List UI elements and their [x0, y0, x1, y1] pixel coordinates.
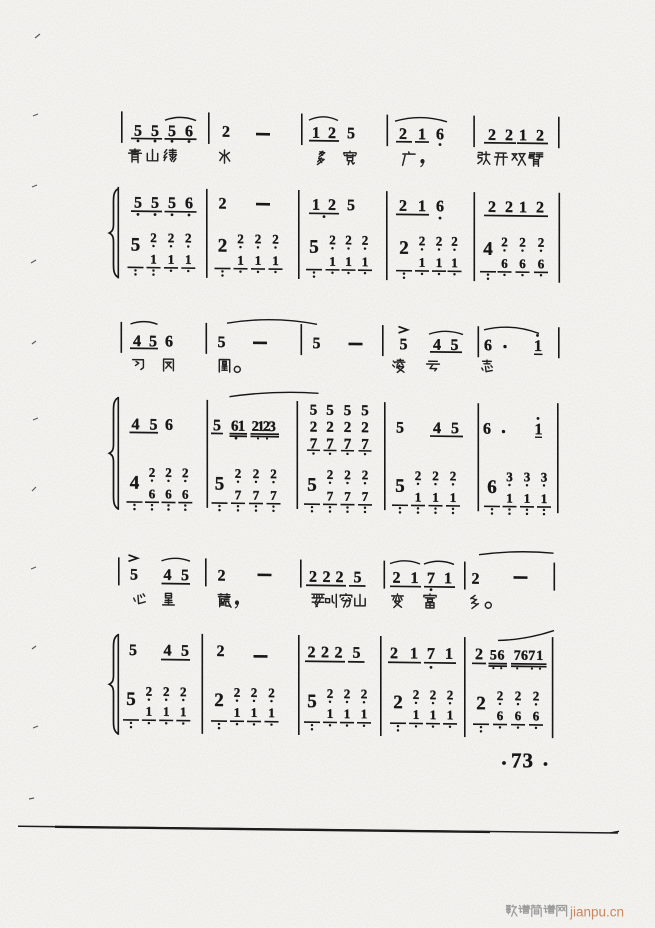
svg-text:2: 2 [415, 468, 421, 483]
svg-text:1: 1 [168, 252, 174, 267]
svg-text:1: 1 [506, 491, 512, 506]
svg-text:6: 6 [182, 487, 189, 502]
svg-text:2: 2 [419, 233, 425, 248]
svg-text:1: 1 [237, 253, 243, 268]
svg-text:2: 2 [270, 466, 276, 481]
svg-text:2: 2 [390, 645, 398, 662]
svg-text:2: 2 [165, 465, 171, 480]
svg-text:2: 2 [272, 232, 278, 247]
svg-text:2: 2 [362, 467, 368, 482]
svg-text:2: 2 [447, 687, 453, 702]
svg-text:1: 1 [535, 421, 543, 438]
svg-text:1: 1 [430, 707, 436, 722]
svg-text:2: 2 [430, 687, 436, 702]
svg-text:1: 1 [411, 570, 419, 587]
svg-text:5: 5 [347, 197, 355, 214]
svg-text:5: 5 [400, 336, 408, 353]
svg-text:5: 5 [181, 643, 189, 660]
svg-text:7: 7 [528, 649, 535, 664]
svg-text:2: 2 [475, 646, 483, 663]
svg-text:1: 1 [361, 706, 367, 721]
svg-text:2: 2 [310, 419, 317, 435]
svg-text:2: 2 [335, 644, 343, 661]
svg-text:2: 2 [344, 686, 350, 701]
svg-text:2: 2 [255, 231, 261, 246]
svg-text:6: 6 [436, 126, 444, 143]
svg-text:4: 4 [164, 567, 172, 584]
svg-text:1: 1 [524, 491, 530, 506]
svg-text:2: 2 [328, 125, 336, 142]
svg-text:1: 1 [447, 707, 453, 722]
svg-text:2: 2 [536, 128, 544, 145]
svg-text:1: 1 [451, 255, 457, 270]
svg-text:6: 6 [483, 421, 491, 438]
svg-text:2: 2 [399, 126, 407, 143]
svg-text:2: 2 [505, 127, 513, 144]
svg-text:2: 2 [399, 198, 407, 215]
svg-text:2: 2 [399, 238, 408, 259]
svg-text:2: 2 [149, 465, 155, 480]
svg-text:2: 2 [163, 684, 169, 699]
svg-text:1: 1 [185, 252, 191, 267]
svg-text:1: 1 [329, 254, 335, 269]
svg-text:5: 5 [396, 420, 404, 437]
svg-text:7: 7 [253, 487, 260, 502]
svg-text:2: 2 [321, 644, 329, 661]
svg-text:2: 2 [497, 688, 503, 703]
svg-text:1: 1 [312, 125, 320, 142]
svg-text:1: 1 [450, 490, 456, 505]
svg-text:1: 1 [272, 253, 278, 268]
svg-text:1: 1 [234, 705, 240, 720]
svg-text:2: 2 [472, 571, 480, 588]
svg-text:6: 6 [185, 123, 193, 140]
svg-text:5: 5 [129, 642, 137, 659]
svg-text:5: 5 [344, 403, 351, 419]
svg-text:2: 2 [413, 687, 419, 702]
svg-text:2: 2 [344, 467, 350, 482]
svg-text:7: 7 [427, 646, 435, 663]
svg-text:4: 4 [132, 416, 140, 433]
svg-text:4: 4 [164, 642, 172, 659]
svg-text:5: 5 [307, 691, 316, 712]
svg-text:1: 1 [268, 705, 274, 720]
svg-text:1: 1 [519, 199, 527, 216]
svg-text:5: 5 [451, 420, 459, 437]
svg-text:7: 7 [344, 489, 351, 504]
svg-text:2: 2 [185, 230, 191, 245]
svg-text:5: 5 [126, 689, 135, 710]
svg-text:2: 2 [237, 231, 243, 246]
svg-text:6: 6 [436, 198, 444, 215]
svg-text:2: 2 [488, 127, 496, 144]
svg-text:1: 1 [150, 252, 156, 267]
svg-text:2: 2 [505, 199, 513, 216]
svg-text:2: 2 [218, 236, 227, 257]
svg-text:1: 1 [541, 491, 547, 506]
svg-text:2: 2 [219, 196, 227, 213]
svg-text:2: 2 [515, 688, 521, 703]
svg-text:1: 1 [445, 646, 453, 663]
svg-text:1: 1 [410, 645, 418, 662]
svg-text:7: 7 [362, 489, 369, 504]
svg-text:1: 1 [255, 253, 261, 268]
svg-text:2: 2 [538, 235, 544, 250]
svg-text:5: 5 [130, 566, 138, 583]
svg-text:3: 3 [524, 469, 531, 484]
svg-text:4: 4 [483, 239, 493, 260]
svg-text:2: 2 [361, 686, 367, 701]
svg-text:1: 1 [413, 707, 419, 722]
svg-text:6: 6 [521, 649, 528, 664]
svg-text:2: 2 [328, 197, 336, 214]
svg-text:5: 5 [213, 417, 221, 434]
svg-text:1: 1 [432, 490, 438, 505]
svg-text:3: 3 [506, 469, 513, 484]
svg-text:2: 2 [168, 230, 174, 245]
svg-text:2: 2 [268, 685, 274, 700]
svg-text:1: 1 [415, 489, 421, 504]
svg-text:1: 1 [418, 198, 426, 215]
svg-text:2: 2 [393, 692, 402, 713]
svg-text:4: 4 [130, 472, 140, 493]
svg-text:5: 5 [361, 403, 368, 419]
svg-text:7: 7 [427, 570, 435, 587]
svg-text:2: 2 [501, 234, 507, 249]
svg-text:5: 5 [347, 125, 355, 142]
svg-text:2: 2 [323, 569, 331, 586]
svg-text:2: 2 [309, 569, 317, 586]
svg-text:1: 1 [444, 570, 452, 587]
svg-text:1: 1 [344, 706, 350, 721]
svg-text:5: 5 [353, 645, 361, 662]
svg-text:5: 5 [309, 237, 318, 258]
svg-text:73: 73 [511, 749, 534, 773]
svg-text:2: 2 [393, 570, 401, 587]
svg-text:2: 2 [361, 420, 368, 436]
svg-text:2: 2 [344, 420, 351, 436]
svg-text:2: 2 [326, 420, 333, 436]
svg-text:2: 2 [488, 199, 496, 216]
svg-text:2: 2 [336, 569, 344, 586]
svg-text:2: 2 [251, 685, 257, 700]
svg-text:5: 5 [151, 123, 159, 140]
svg-text:6: 6 [519, 256, 526, 271]
svg-text:jianpu.cn: jianpu.cn [569, 905, 624, 920]
svg-text:5: 5 [134, 195, 142, 212]
svg-text:7: 7 [270, 488, 277, 503]
svg-text:2: 2 [476, 693, 485, 714]
svg-text:1: 1 [251, 705, 257, 720]
svg-text:2: 2 [519, 235, 525, 250]
svg-text:2: 2 [327, 467, 333, 482]
svg-text:6: 6 [165, 417, 173, 434]
svg-text:2: 2 [345, 232, 351, 247]
svg-text:2: 2 [308, 644, 316, 661]
svg-text:6: 6 [515, 708, 522, 723]
svg-text:1: 1 [362, 254, 368, 269]
svg-text:7: 7 [235, 487, 242, 502]
svg-text:2: 2 [432, 468, 438, 483]
svg-text:6: 6 [149, 486, 156, 501]
svg-text:5: 5 [131, 234, 140, 255]
svg-text:6: 6 [165, 333, 173, 350]
svg-text:5: 5 [151, 195, 159, 212]
svg-text:5: 5 [313, 335, 321, 352]
svg-text:6: 6 [165, 486, 172, 501]
svg-text:6: 6 [185, 195, 193, 212]
svg-text:5: 5 [354, 569, 362, 586]
svg-text:1: 1 [418, 126, 426, 143]
svg-text:2: 2 [329, 232, 335, 247]
svg-text:1: 1 [180, 704, 186, 719]
svg-text:1: 1 [238, 419, 245, 435]
svg-text:2: 2 [235, 466, 241, 481]
svg-text:6: 6 [501, 256, 508, 271]
svg-text:2: 2 [180, 684, 186, 699]
svg-text:5: 5 [490, 648, 497, 663]
svg-text:1: 1 [312, 197, 320, 214]
svg-text:2: 2 [222, 124, 230, 141]
svg-text:1: 1 [146, 704, 152, 719]
svg-text:6: 6 [498, 648, 505, 663]
svg-text:1: 1 [519, 127, 527, 144]
svg-text:2: 2 [436, 234, 442, 249]
svg-text:6: 6 [538, 256, 545, 271]
svg-text:2: 2 [327, 686, 333, 701]
svg-text:7: 7 [327, 488, 334, 503]
svg-text:2: 2 [362, 233, 368, 248]
svg-text:6: 6 [497, 708, 504, 723]
svg-text:1: 1 [163, 704, 169, 719]
svg-text:2: 2 [450, 468, 456, 483]
svg-text:7: 7 [514, 649, 521, 664]
svg-text:2: 2 [146, 684, 152, 699]
svg-text:1: 1 [536, 649, 543, 664]
svg-text:3: 3 [541, 469, 548, 484]
svg-text:2: 2 [150, 230, 156, 245]
svg-text:1: 1 [436, 255, 442, 270]
svg-text:5: 5 [395, 476, 404, 497]
svg-text:2: 2 [536, 199, 544, 216]
svg-text:1: 1 [327, 706, 333, 721]
svg-text:2: 2 [451, 234, 457, 249]
svg-text:1: 1 [534, 338, 542, 355]
svg-text:5: 5 [181, 567, 189, 584]
svg-text:2: 2 [234, 685, 240, 700]
svg-text:5: 5 [218, 334, 226, 351]
svg-text:2: 2 [182, 465, 188, 480]
svg-text:1: 1 [345, 254, 351, 269]
svg-text:5: 5 [326, 403, 333, 419]
svg-text:5: 5 [307, 475, 316, 496]
svg-text:4: 4 [433, 420, 441, 437]
svg-text:5: 5 [150, 417, 158, 434]
svg-text:2: 2 [218, 568, 226, 585]
svg-text:6: 6 [487, 477, 496, 498]
svg-text:2: 2 [217, 643, 225, 660]
svg-text:6: 6 [533, 708, 540, 723]
svg-text:6: 6 [484, 337, 492, 354]
svg-text:3: 3 [269, 419, 276, 435]
svg-text:5: 5 [215, 474, 224, 495]
svg-text:2: 2 [253, 466, 259, 481]
svg-text:2: 2 [214, 690, 223, 711]
svg-text:5: 5 [310, 403, 317, 419]
svg-text:2: 2 [533, 688, 539, 703]
svg-text:5: 5 [168, 123, 176, 140]
svg-text:1: 1 [419, 255, 425, 270]
svg-text:5: 5 [168, 195, 176, 212]
svg-text:5: 5 [134, 123, 142, 140]
